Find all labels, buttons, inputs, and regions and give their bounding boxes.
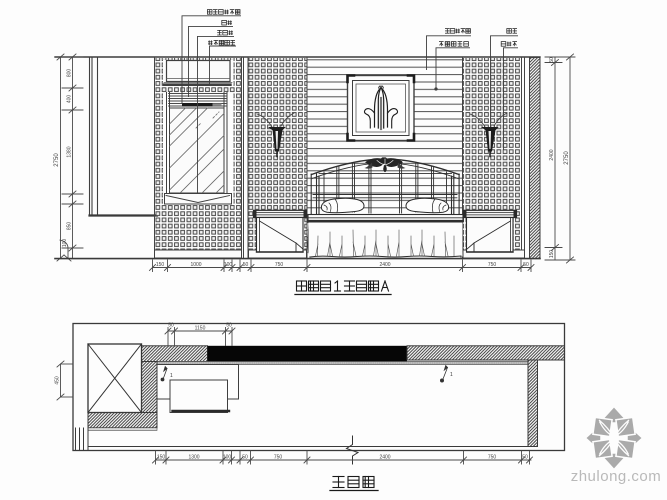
svg-text:50: 50: [522, 455, 528, 461]
svg-text:1150: 1150: [195, 326, 206, 332]
svg-text:50: 50: [549, 57, 555, 63]
svg-text:750: 750: [488, 455, 497, 461]
svg-text:1: 1: [450, 372, 453, 378]
svg-text:2750: 2750: [54, 153, 60, 167]
svg-text:1000: 1000: [190, 262, 201, 268]
svg-text:100: 100: [223, 455, 232, 461]
svg-text:400: 400: [67, 95, 73, 104]
svg-text:zhulong.com: zhulong.com: [571, 468, 662, 485]
svg-text:450: 450: [55, 376, 61, 385]
svg-text:2400: 2400: [379, 455, 390, 461]
svg-text:100: 100: [224, 262, 233, 268]
svg-text:2400: 2400: [549, 149, 555, 160]
svg-text:1: 1: [170, 373, 173, 379]
svg-text:100: 100: [62, 239, 68, 248]
svg-text:50: 50: [242, 455, 248, 461]
svg-text:800: 800: [67, 69, 73, 78]
svg-text:750: 750: [274, 455, 283, 461]
svg-text:50: 50: [243, 262, 249, 268]
svg-text:50: 50: [226, 323, 232, 329]
svg-text:50: 50: [168, 323, 174, 329]
svg-text:50: 50: [523, 262, 529, 268]
svg-text:150: 150: [156, 262, 165, 268]
svg-text:750: 750: [275, 262, 284, 268]
svg-text:2400: 2400: [379, 262, 390, 268]
svg-text:850: 850: [67, 222, 73, 231]
svg-text:150: 150: [157, 455, 166, 461]
svg-text:1300: 1300: [188, 455, 199, 461]
svg-text:750: 750: [488, 262, 497, 268]
svg-text:150: 150: [549, 250, 555, 259]
svg-text:2750: 2750: [564, 151, 570, 165]
svg-text:1380: 1380: [67, 146, 73, 157]
